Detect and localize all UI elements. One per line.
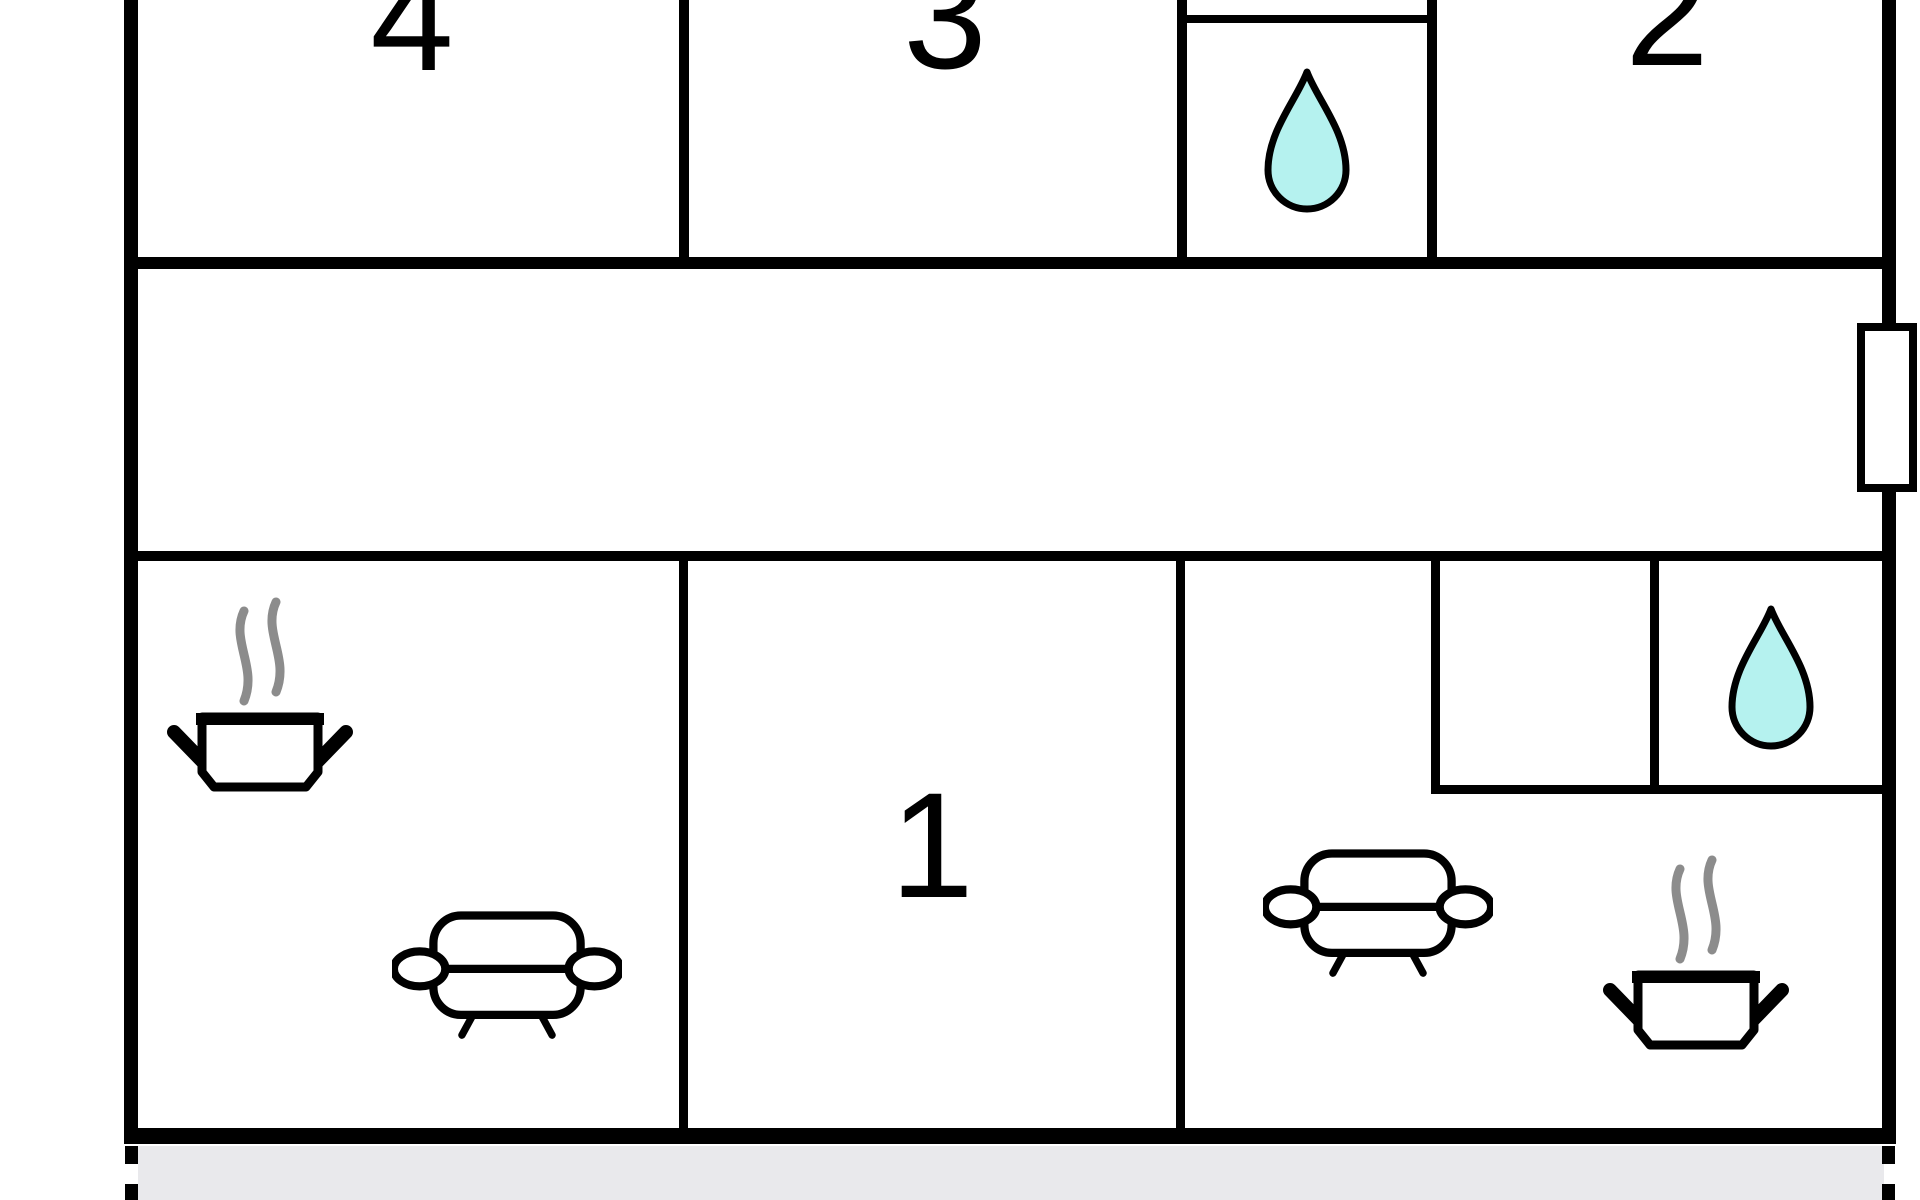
wall-between-room1-living <box>1176 556 1185 1136</box>
water-drop-icon <box>1263 67 1351 214</box>
sofa-armrest <box>1440 889 1492 924</box>
room-label-1: 1 <box>890 770 973 920</box>
sofa-armrest <box>569 951 621 986</box>
sofa-icon <box>392 908 622 1039</box>
terrace-edge-dash <box>1882 1146 1895 1164</box>
sofa-armrest <box>1265 889 1317 924</box>
terrace-edge-dash <box>125 1184 138 1200</box>
wall-bathroom-top-left <box>1177 0 1187 263</box>
wall-smallrooms-left <box>1431 556 1440 793</box>
room-label-3: 3 <box>903 0 986 91</box>
pot-body <box>202 717 318 787</box>
water-drop-icon <box>1727 604 1815 751</box>
terrace-strip <box>138 1146 1884 1200</box>
wall-between-room4-room3 <box>679 0 689 263</box>
wall-outer-bottom <box>124 1128 1896 1144</box>
wall-corridor-bottom <box>124 551 1896 561</box>
wall-between-kitchen-room1 <box>679 556 688 1136</box>
cooking-pot-icon <box>160 597 360 807</box>
water-drop-shape <box>1732 609 1810 746</box>
wall-smallrooms-divider <box>1650 556 1659 793</box>
steam-line <box>1708 860 1716 950</box>
corridor <box>138 269 1882 551</box>
room-label-2: 2 <box>1625 0 1708 88</box>
pot-body <box>1638 975 1754 1045</box>
floor-plan: 4 3 2 1 <box>0 0 1920 1200</box>
room-label-4: 4 <box>370 0 453 93</box>
wall-bathroom-top-right <box>1427 0 1437 263</box>
wall-bathroom-top-inner-line <box>1182 15 1432 23</box>
sofa-icon <box>1263 846 1493 977</box>
window-marker <box>1857 323 1917 492</box>
wall-corridor-top <box>124 257 1896 269</box>
sofa-armrest <box>394 951 446 986</box>
water-drop-shape <box>1268 72 1346 209</box>
steam-line <box>272 602 280 692</box>
wall-smallrooms-bottom <box>1431 785 1896 794</box>
wall-outer-left <box>124 0 138 1144</box>
terrace-edge-dash <box>1882 1184 1895 1200</box>
cooking-pot-icon <box>1596 855 1796 1065</box>
wall-outer-right <box>1882 0 1896 1144</box>
storage-room-small <box>1440 561 1650 785</box>
terrace-edge-dash <box>125 1146 138 1164</box>
steam-line <box>1676 869 1684 959</box>
steam-line <box>240 611 248 701</box>
